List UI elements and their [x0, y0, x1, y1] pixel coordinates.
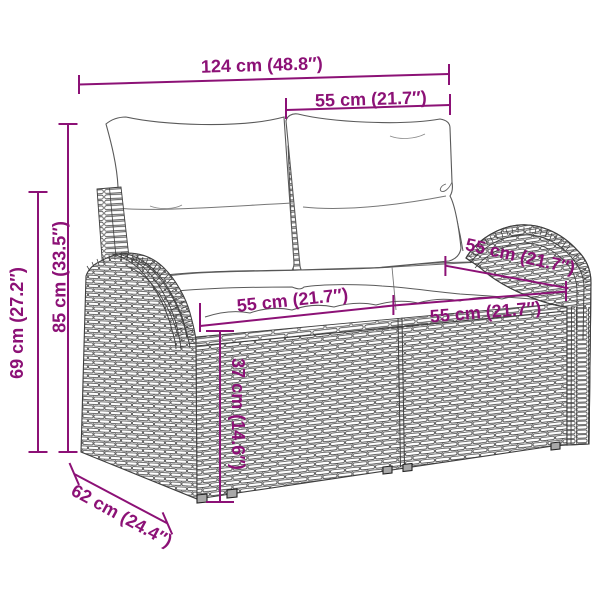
- svg-text:124 cm (48.8″): 124 cm (48.8″): [201, 53, 323, 76]
- svg-text:85 cm (33.5″): 85 cm (33.5″): [50, 221, 70, 333]
- svg-text:37 cm (14.6″): 37 cm (14.6″): [228, 358, 248, 470]
- svg-text:69 cm (27.2″): 69 cm (27.2″): [7, 267, 27, 379]
- svg-text:55 cm (21.7″): 55 cm (21.7″): [315, 87, 427, 110]
